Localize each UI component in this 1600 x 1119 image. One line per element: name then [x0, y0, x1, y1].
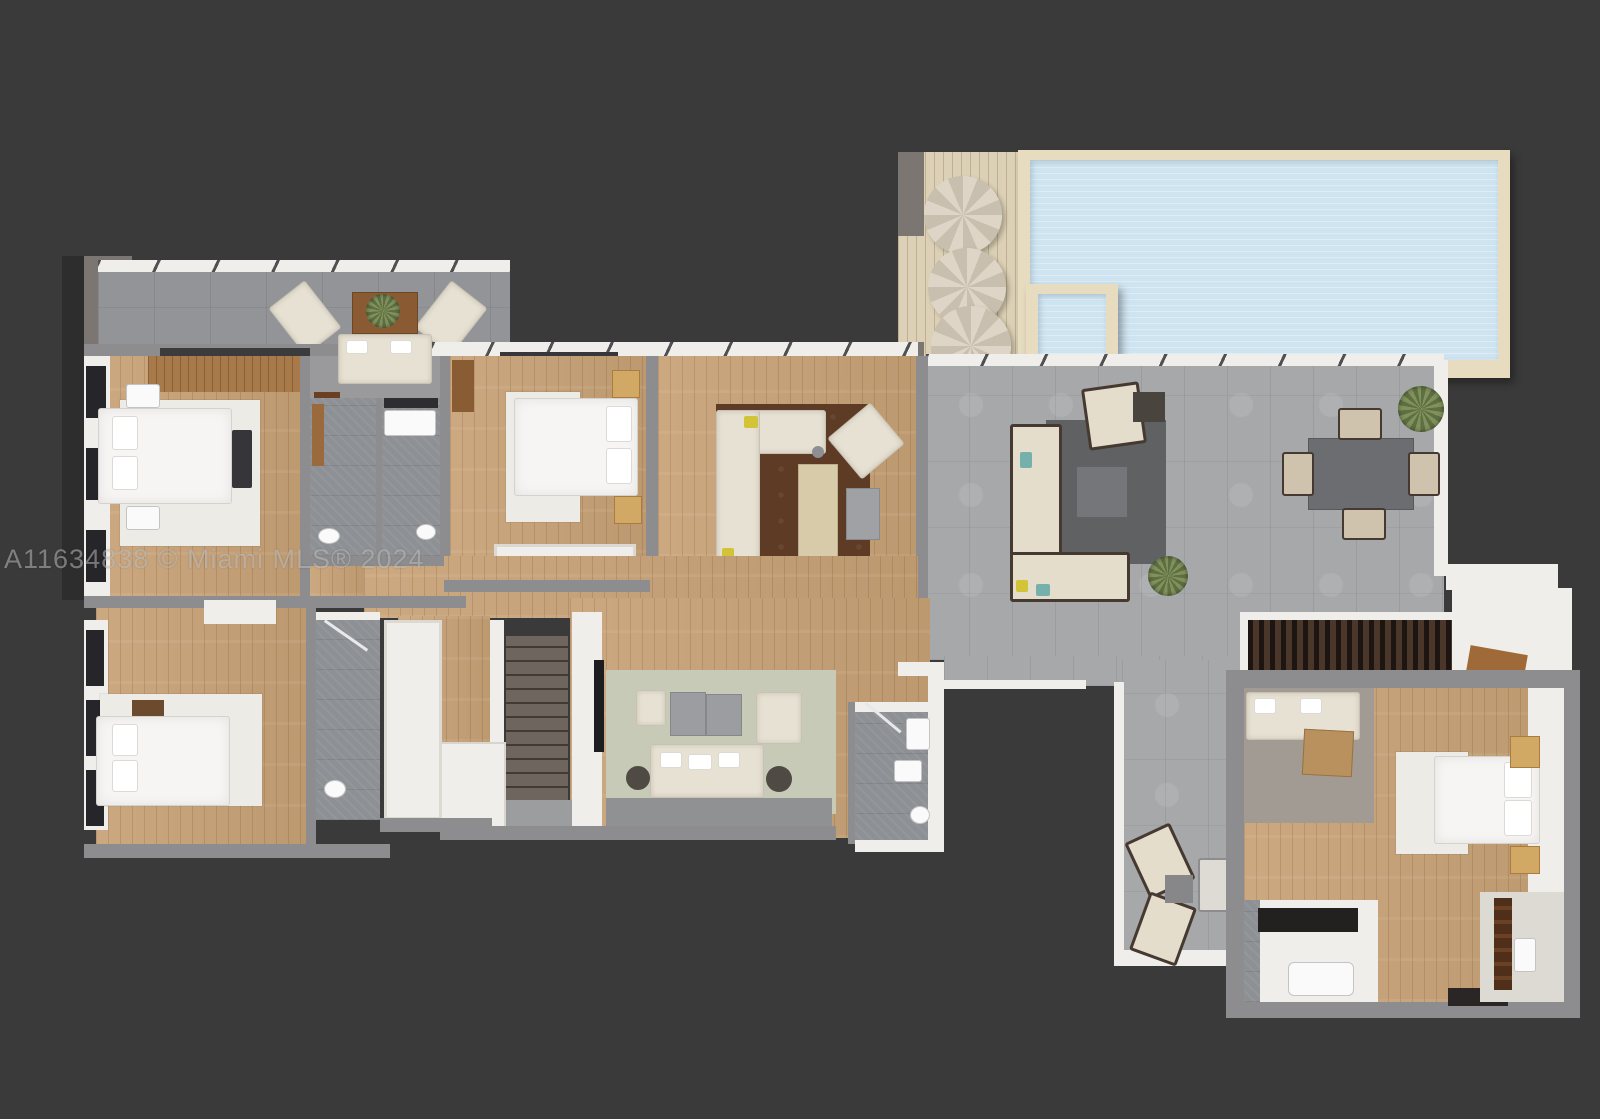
- living-bath-wall-right: [928, 672, 944, 852]
- bed-pillow: [112, 456, 138, 490]
- living-ottoman: [706, 694, 742, 736]
- bed-bench: [232, 430, 252, 488]
- bedroom1-headboard-wall: [148, 356, 310, 392]
- outdoor-side-table: [1133, 392, 1165, 422]
- terrace-wall-jut: [1446, 564, 1558, 590]
- umbrella-icon: [924, 176, 1002, 254]
- living-balcony-ledge: [606, 798, 832, 828]
- master-wall-bottom: [1226, 1002, 1578, 1018]
- bed-pillow: [112, 416, 138, 450]
- dining-chair: [1408, 452, 1440, 496]
- toilet: [324, 780, 346, 798]
- outdoor-sectional-horizontal: [1010, 552, 1130, 602]
- living-bath-wall-bottom: [855, 840, 943, 852]
- side-table: [626, 766, 650, 790]
- living-wall-bottom: [566, 826, 836, 840]
- strip-wall-left: [1114, 682, 1124, 958]
- teal-pillow: [1036, 584, 1050, 596]
- sofa-pillow: [1300, 698, 1322, 714]
- side-table: [766, 766, 792, 792]
- mls-watermark: A11634838 © Miami MLS® 2024: [4, 544, 425, 575]
- floor-lamp: [812, 446, 824, 458]
- master-wall-left: [1226, 670, 1244, 1018]
- tv-screen: [594, 660, 604, 752]
- sofa-pillow: [718, 752, 740, 768]
- plant-icon: [1398, 386, 1444, 432]
- den-sofa-vertical: [716, 410, 760, 566]
- living-armchair: [756, 692, 802, 744]
- yellow-pillow: [1016, 580, 1028, 592]
- terrace-rail-top: [926, 354, 1444, 366]
- master-wall-top: [1226, 670, 1578, 688]
- closet-wardrobe: [1494, 898, 1512, 990]
- master-nook-table: [1302, 729, 1354, 778]
- dining-table: [1308, 438, 1414, 510]
- dining-chair: [1338, 408, 1382, 440]
- sofa-pillow: [1254, 698, 1276, 714]
- closet-dresser: [1514, 938, 1536, 972]
- living-ottoman: [670, 692, 706, 736]
- dining-chair: [1282, 452, 1314, 496]
- balcony-rail-top: [98, 260, 510, 272]
- bed-pillow: [1504, 800, 1532, 836]
- bedroom2-cabinet: [452, 360, 474, 412]
- bathtub: [1288, 962, 1354, 996]
- bed-pillow: [606, 448, 632, 484]
- bed3-closet-band: [384, 620, 442, 820]
- bed3-wall-bottom: [84, 844, 390, 858]
- bath3-wall-bottom: [380, 818, 492, 832]
- bath2-mirror: [384, 398, 438, 408]
- bed-pillow: [112, 724, 138, 756]
- master-bath-vanity: [1258, 908, 1358, 932]
- toilet: [910, 806, 930, 824]
- living-pouf: [636, 690, 666, 726]
- sofa-pillow: [346, 340, 368, 354]
- bedroom3-closet-top: [204, 600, 276, 624]
- nightstand: [126, 506, 160, 530]
- nightstand: [126, 384, 160, 408]
- yellow-pillow: [744, 416, 758, 428]
- nightstand: [614, 496, 642, 524]
- pool-deck-wall: [898, 152, 924, 236]
- toilet: [416, 524, 436, 540]
- den-runner-table: [798, 464, 838, 562]
- sofa-pillow: [390, 340, 412, 354]
- bed-pillow: [112, 760, 138, 792]
- plant-icon: [1148, 556, 1188, 596]
- floor-plan-render: A11634838 © Miami MLS® 2024: [0, 0, 1600, 1119]
- outdoor-mat: [1165, 875, 1193, 903]
- teal-pillow: [1020, 452, 1032, 468]
- bed2-wall-bottom: [444, 580, 650, 592]
- dining-chair: [1342, 508, 1386, 540]
- nightstand: [612, 370, 640, 398]
- wall-bed3-bath: [306, 596, 316, 848]
- toilet: [318, 528, 340, 544]
- bed-pillow: [606, 406, 632, 442]
- sofa-pillow: [660, 752, 682, 768]
- terrace-coffee-table: [1076, 466, 1128, 518]
- bath-vanity: [894, 760, 922, 782]
- void-wall-top: [944, 680, 1086, 689]
- window-pane: [86, 630, 104, 686]
- staircase: [506, 636, 568, 802]
- bath1-vanity: [312, 404, 324, 466]
- den-bench: [846, 488, 880, 540]
- nightstand: [1510, 846, 1540, 874]
- plant-icon: [366, 294, 400, 328]
- spa-tub: [1038, 294, 1106, 360]
- nightstand: [1510, 736, 1540, 768]
- bath2-vanity: [384, 410, 436, 436]
- master-wall-right: [1564, 670, 1580, 1018]
- shower-bench: [906, 718, 930, 750]
- sofa-pillow: [688, 754, 712, 770]
